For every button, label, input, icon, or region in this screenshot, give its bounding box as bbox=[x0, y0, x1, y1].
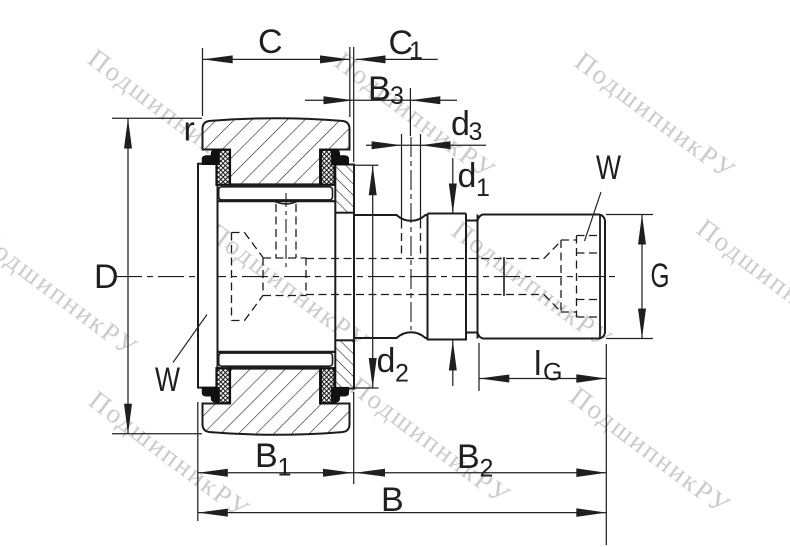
svg-text:2: 2 bbox=[480, 455, 494, 483]
svg-text:W: W bbox=[596, 149, 621, 187]
svg-text:B: B bbox=[457, 438, 480, 476]
svg-text:1: 1 bbox=[278, 454, 292, 482]
svg-text:1: 1 bbox=[476, 174, 490, 202]
svg-text:B: B bbox=[368, 70, 391, 108]
svg-text:2: 2 bbox=[395, 360, 409, 388]
svg-text:r: r bbox=[184, 111, 195, 149]
svg-text:1: 1 bbox=[409, 37, 423, 65]
svg-text:d: d bbox=[458, 157, 477, 195]
svg-text:G: G bbox=[543, 359, 562, 387]
svg-text:D: D bbox=[94, 258, 119, 296]
svg-text:C: C bbox=[258, 23, 283, 61]
svg-text:B: B bbox=[255, 437, 278, 475]
svg-text:l: l bbox=[534, 345, 542, 383]
svg-text:W: W bbox=[155, 361, 180, 399]
svg-text:B: B bbox=[381, 481, 404, 519]
svg-text:3: 3 bbox=[469, 118, 483, 146]
svg-text:3: 3 bbox=[390, 82, 404, 110]
svg-text:d: d bbox=[377, 342, 396, 380]
svg-text:G: G bbox=[651, 257, 670, 295]
svg-text:d: d bbox=[451, 105, 470, 143]
